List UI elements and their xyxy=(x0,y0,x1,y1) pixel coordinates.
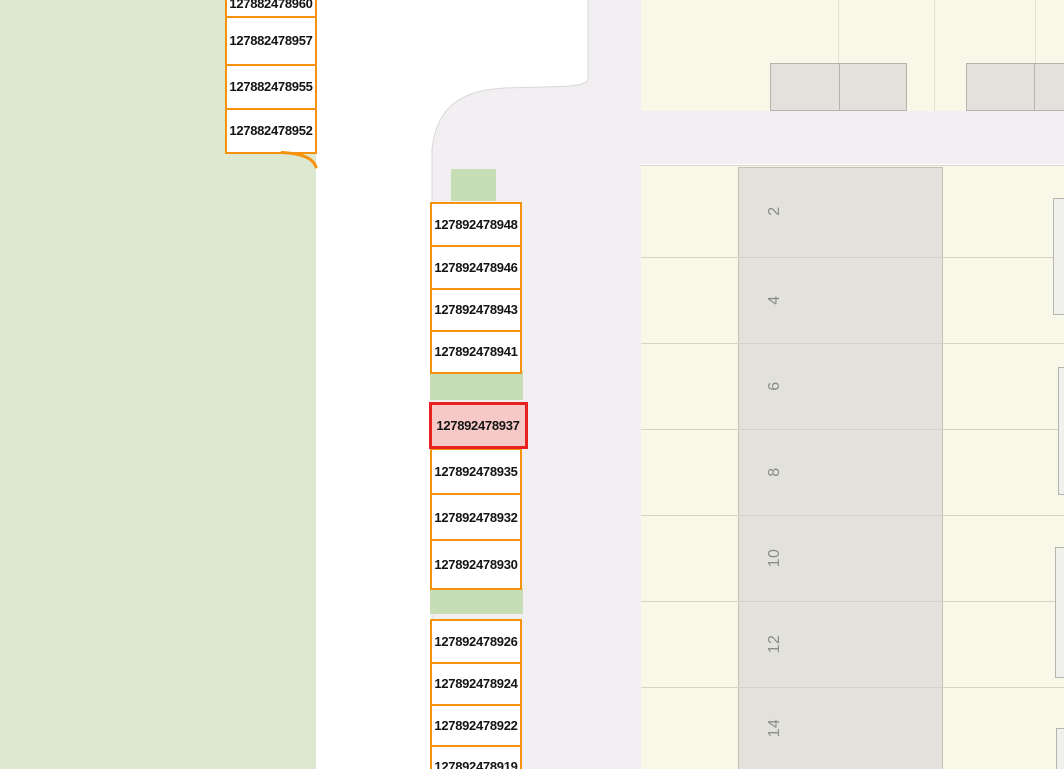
building xyxy=(1053,198,1064,315)
parcel-box[interactable]: 127892478948 xyxy=(430,202,522,248)
parcel-box[interactable]: 127892478919 xyxy=(430,745,522,769)
house-number: 4 xyxy=(755,280,795,320)
house-number: 14 xyxy=(755,708,795,748)
grass-patch xyxy=(430,371,523,400)
parcel-box[interactable]: 127892478932 xyxy=(430,493,522,542)
parcel-box[interactable]: 127892478930 xyxy=(430,539,522,590)
plot-boundary-line xyxy=(838,0,839,63)
residential-grid: 2 4 6 8 10 12 14 xyxy=(641,165,1064,769)
plot-row-line xyxy=(641,601,1064,602)
house-number: 12 xyxy=(755,624,795,664)
parcel-box[interactable]: 127892478941 xyxy=(430,330,522,374)
map-canvas: 2 4 6 8 10 12 14 127882478960 1278824789… xyxy=(0,0,1064,769)
plot-row-line xyxy=(641,687,1064,688)
parcel-box[interactable]: 127882478957 xyxy=(225,16,317,67)
parcel-box[interactable]: 127892478943 xyxy=(430,288,522,333)
building-divider-line xyxy=(1034,64,1035,110)
plot-row-line xyxy=(641,343,1064,344)
road-area-horizontal xyxy=(641,111,1064,164)
building xyxy=(966,63,1064,111)
house-number: 6 xyxy=(755,366,795,406)
parcel-box[interactable]: 127882478955 xyxy=(225,64,317,111)
plot-boundary-line xyxy=(1035,0,1036,63)
house-number: 2 xyxy=(755,191,795,231)
grass-patch xyxy=(430,588,523,614)
house-number: 8 xyxy=(755,452,795,492)
grid-top-line xyxy=(641,165,1064,166)
building xyxy=(770,63,907,111)
residential-area-top xyxy=(641,0,1064,111)
plot-row-line xyxy=(641,515,1064,516)
plot-boundary-line xyxy=(934,0,935,111)
house-number: 10 xyxy=(755,538,795,578)
parcel-box[interactable]: 127882478952 xyxy=(225,108,317,154)
building xyxy=(1055,547,1064,678)
building-divider-line xyxy=(839,64,840,110)
parcel-box[interactable]: 127892478924 xyxy=(430,662,522,707)
parcel-box[interactable]: 127892478946 xyxy=(430,245,522,290)
parcel-box[interactable]: 127892478935 xyxy=(430,448,522,496)
building xyxy=(1056,728,1064,769)
plot-row-line xyxy=(641,257,1064,258)
parcel-box[interactable]: 127892478922 xyxy=(430,704,522,748)
parcel-box[interactable]: 127892478926 xyxy=(430,619,522,664)
building xyxy=(1058,367,1064,495)
grass-patch xyxy=(451,169,496,201)
plot-row-line xyxy=(641,429,1064,430)
selected-parcel-box[interactable]: 127892478937 xyxy=(429,402,528,449)
